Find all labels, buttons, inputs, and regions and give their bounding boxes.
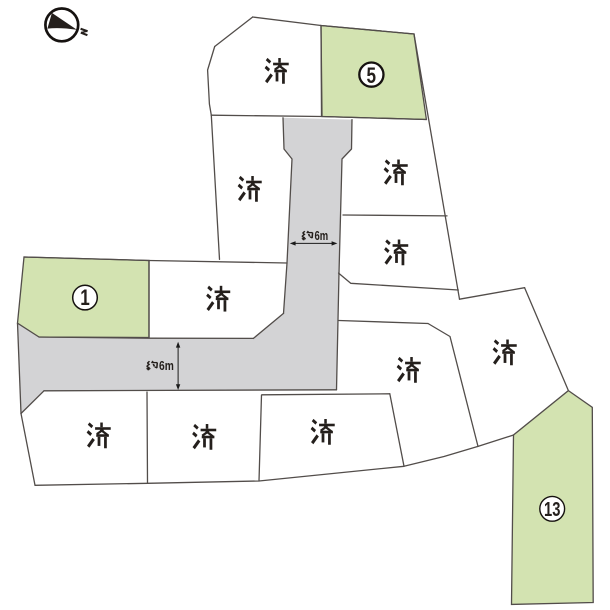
svg-text:1: 1 <box>80 286 90 311</box>
svg-text:13: 13 <box>544 498 560 521</box>
svg-text:5: 5 <box>367 64 377 89</box>
svg-text:6m: 6m <box>159 360 174 373</box>
svg-text:6m: 6m <box>315 230 329 244</box>
